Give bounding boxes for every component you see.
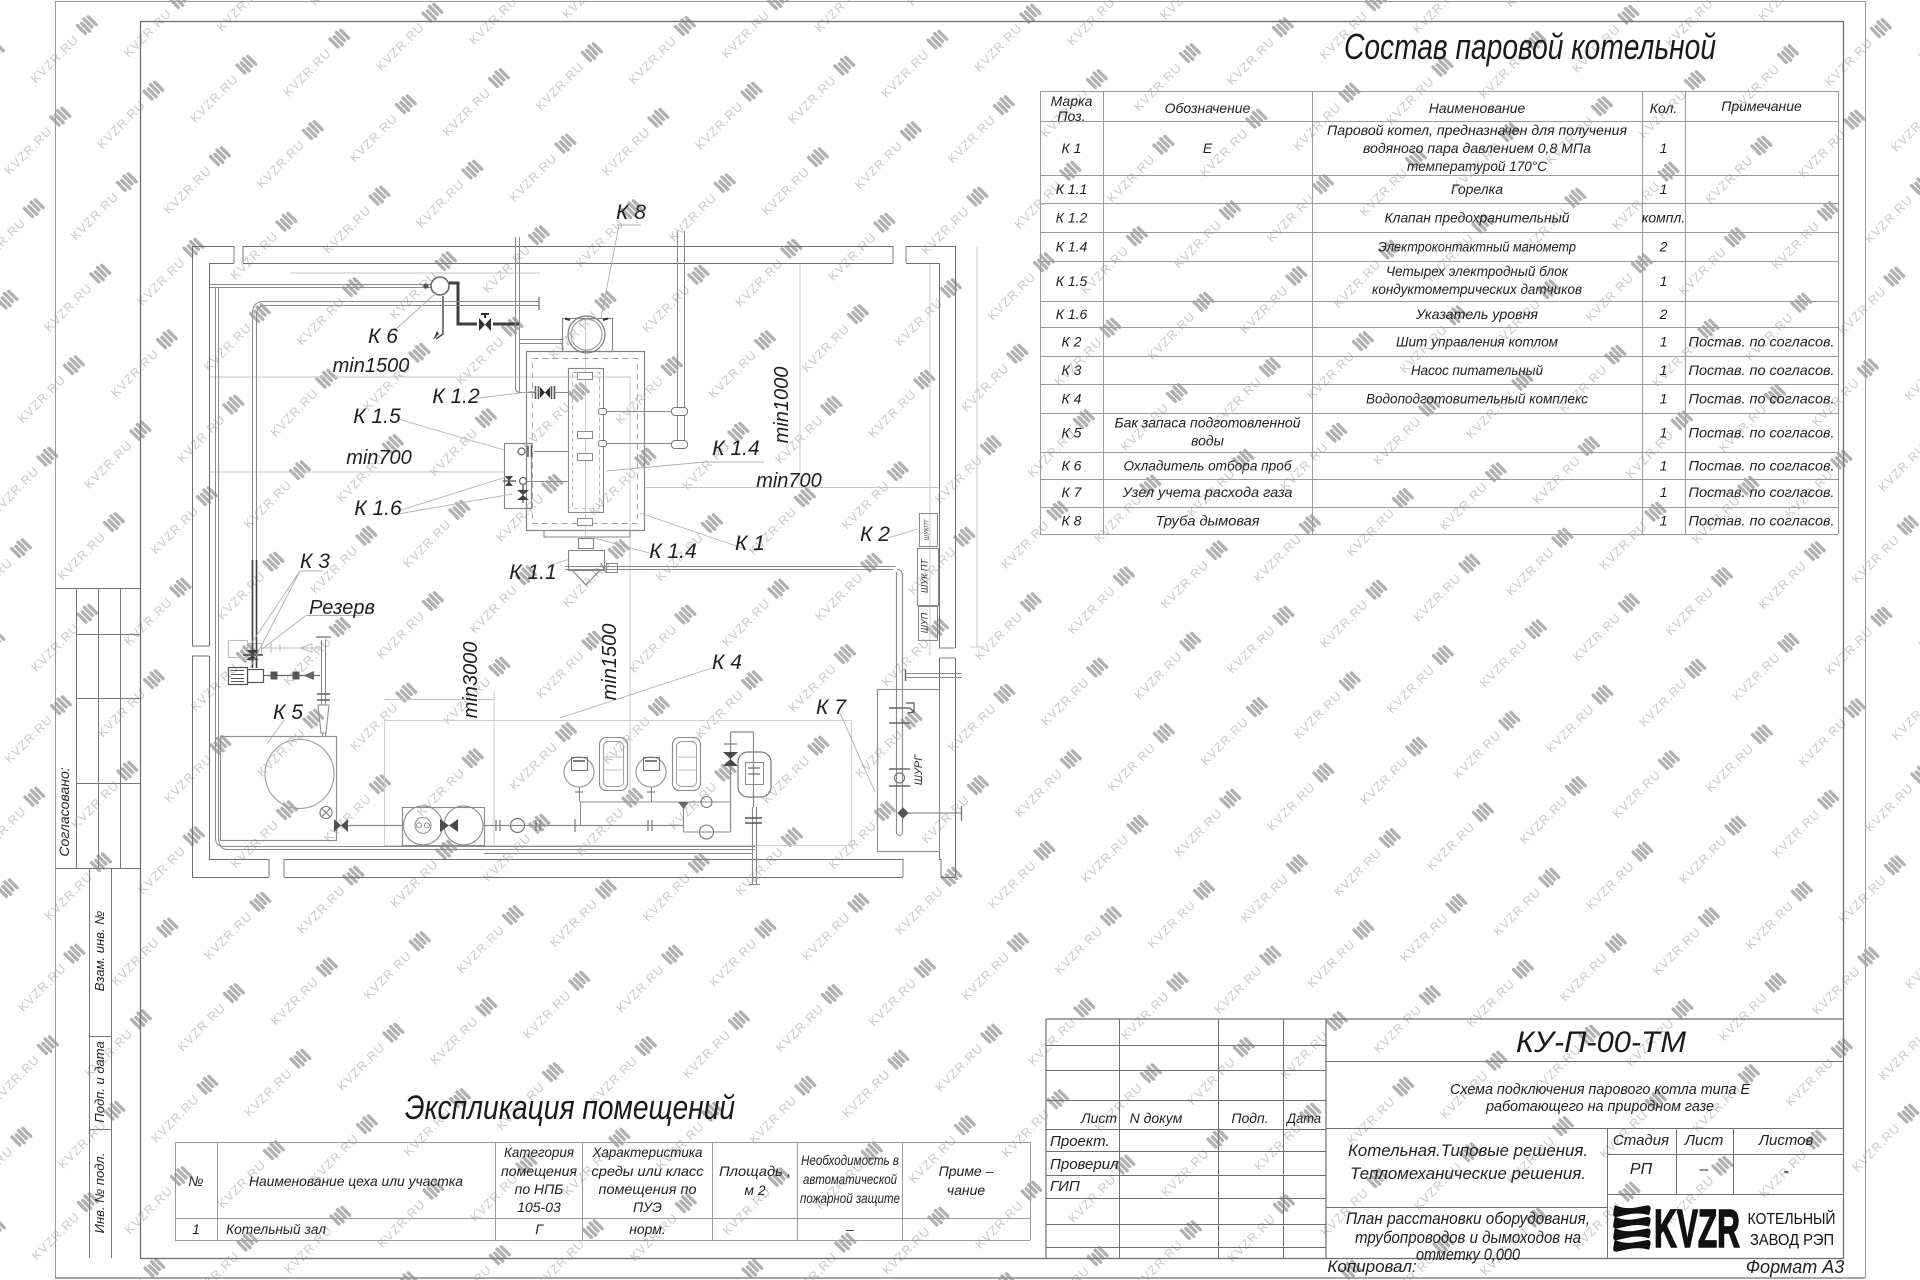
svg-text:Паровой котел, предназначен дл: Паровой котел, предназначен для получени…: [1327, 122, 1628, 138]
svg-text:К 1: К 1: [1062, 140, 1082, 156]
svg-text:Труба дымовая: Труба дымовая: [1156, 513, 1261, 529]
svg-text:1: 1: [1660, 334, 1668, 350]
svg-text:Резерв: Резерв: [309, 597, 375, 619]
svg-text:Приме –: Приме –: [939, 1163, 994, 1179]
svg-text:Постав. по согласов.: Постав. по согласов.: [1689, 513, 1835, 529]
svg-text:работающего на природном газе: работающего на природном газе: [1485, 1098, 1714, 1115]
svg-text:К 5: К 5: [273, 701, 303, 724]
svg-text:ПУЭ: ПУЭ: [633, 1199, 662, 1215]
svg-text:1: 1: [192, 1221, 200, 1237]
svg-text:помещения: помещения: [501, 1163, 578, 1179]
svg-text:min3000: min3000: [460, 642, 482, 719]
svg-text:План расстановки оборудования,: План расстановки оборудования,: [1346, 1209, 1590, 1228]
svg-text:Кол.: Кол.: [1650, 100, 1678, 116]
svg-text:Проект.: Проект.: [1050, 1133, 1110, 1150]
svg-text:1: 1: [1660, 458, 1668, 474]
svg-text:К 1.2: К 1.2: [432, 385, 480, 408]
svg-text:Согласовано:: Согласовано:: [56, 767, 72, 856]
svg-text:ЗАВОД РЭП: ЗАВОД РЭП: [1750, 1232, 1834, 1249]
svg-text:Клапан предохранительный: Клапан предохранительный: [1385, 210, 1570, 226]
svg-text:К 1.5: К 1.5: [353, 405, 401, 428]
svg-text:Подп. и дата: Подп. и дата: [92, 1041, 107, 1122]
svg-text:1: 1: [1660, 391, 1668, 407]
svg-text:-: -: [1783, 1163, 1788, 1180]
svg-text:Тепломеханические решения.: Тепломеханические решения.: [1350, 1164, 1586, 1183]
svg-text:К 2: К 2: [860, 523, 890, 546]
svg-text:min1500: min1500: [333, 355, 410, 377]
svg-text:Наименование цеха или участка: Наименование цеха или участка: [249, 1173, 463, 1189]
svg-text:Постав. по согласов.: Постав. по согласов.: [1689, 391, 1835, 407]
svg-text:ШУРГ: ШУРГ: [913, 754, 925, 785]
svg-text:Лист: Лист: [1684, 1132, 1724, 1149]
svg-text:Постав. по согласов.: Постав. по согласов.: [1689, 484, 1835, 500]
svg-text:К 6: К 6: [1062, 458, 1082, 474]
svg-text:min1500: min1500: [599, 624, 621, 701]
svg-text:Бак запаса подготовленной: Бак запаса подготовленной: [1115, 415, 1301, 431]
svg-text:Проверил: Проверил: [1050, 1156, 1119, 1173]
svg-text:Подп.: Подп.: [1231, 1110, 1268, 1126]
svg-text:Постав. по согласов.: Постав. по согласов.: [1689, 458, 1835, 474]
svg-text:К 1: К 1: [735, 532, 765, 555]
svg-text:Формат А3: Формат А3: [1746, 1257, 1845, 1277]
svg-text:Водоподготовительный комплекс: Водоподготовительный комплекс: [1366, 391, 1588, 407]
svg-text:105-03: 105-03: [517, 1199, 561, 1215]
svg-text:min700: min700: [346, 447, 412, 469]
svg-text:К 1.1: К 1.1: [1056, 181, 1088, 197]
svg-text:Листов: Листов: [1758, 1132, 1814, 1149]
svg-text:Указатель уровня: Указатель уровня: [1415, 306, 1539, 322]
svg-text:Постав. по согласов.: Постав. по согласов.: [1689, 425, 1835, 441]
svg-text:воды: воды: [1191, 433, 1225, 449]
svg-text:ШУК ПТ: ШУК ПТ: [920, 558, 930, 593]
svg-text:К 1.1: К 1.1: [509, 561, 556, 584]
svg-text:ШУП: ШУП: [920, 612, 930, 633]
svg-text:1: 1: [1660, 273, 1668, 289]
svg-text:К 3: К 3: [300, 550, 330, 573]
svg-text:РП: РП: [1630, 1161, 1653, 1178]
svg-text:К 6: К 6: [368, 325, 398, 348]
svg-text:1: 1: [1660, 140, 1668, 156]
svg-text:К 4: К 4: [712, 651, 742, 674]
svg-text:Стадия: Стадия: [1613, 1132, 1669, 1149]
svg-text:пожарной защите: пожарной защите: [800, 1190, 900, 1206]
svg-text:Инв. № подл.: Инв. № подл.: [92, 1153, 107, 1234]
svg-text:–: –: [1699, 1161, 1709, 1178]
svg-text:Лист: Лист: [1080, 1110, 1117, 1126]
svg-text:1: 1: [1660, 513, 1668, 529]
svg-text:КОТЕЛЬНЫЙ: КОТЕЛЬНЫЙ: [1748, 1209, 1836, 1228]
svg-text:норм.: норм.: [629, 1221, 666, 1237]
svg-text:К 1.5: К 1.5: [1056, 273, 1088, 289]
svg-text:Марка: Марка: [1051, 93, 1093, 109]
svg-text:Четырех электродный блок: Четырех электродный блок: [1386, 263, 1569, 279]
svg-text:К 8: К 8: [616, 201, 646, 224]
svg-text:К 7: К 7: [816, 696, 847, 719]
svg-text:2: 2: [1659, 239, 1668, 255]
svg-text:N докум: N докум: [1130, 1110, 1183, 1126]
svg-text:№: №: [188, 1173, 203, 1189]
svg-text:чание: чание: [947, 1182, 986, 1198]
svg-text:Е: Е: [1203, 140, 1213, 156]
svg-text:Узел учета расхода газа: Узел учета расхода газа: [1121, 484, 1292, 500]
svg-text:Охладитель отбора проб: Охладитель отбора проб: [1124, 458, 1293, 474]
svg-text:КУ-П-00-ТМ: КУ-П-00-ТМ: [1516, 1026, 1686, 1059]
svg-text:К 7: К 7: [1062, 484, 1083, 500]
svg-text:отметку 0,000: отметку 0,000: [1416, 1245, 1520, 1264]
svg-text:Дата: Дата: [1285, 1110, 1321, 1126]
svg-text:1: 1: [1660, 425, 1668, 441]
svg-text:Поз.: Поз.: [1057, 108, 1085, 124]
svg-text:К 1.6: К 1.6: [1056, 306, 1088, 322]
svg-text:–: –: [845, 1221, 854, 1237]
svg-text:Примечание: Примечание: [1721, 98, 1802, 114]
svg-text:2: 2: [1659, 306, 1668, 322]
svg-text:К 1.2: К 1.2: [1056, 210, 1088, 226]
svg-text:К 2: К 2: [1062, 334, 1082, 350]
svg-text:Категория: Категория: [504, 1144, 574, 1160]
svg-text:Площадь ,: Площадь ,: [719, 1163, 791, 1179]
svg-text:1: 1: [1660, 181, 1668, 197]
svg-text:автоматической: автоматической: [803, 1171, 897, 1187]
svg-text:Состав паровой котельной: Состав паровой котельной: [1344, 26, 1716, 67]
svg-text:компл.: компл.: [1642, 210, 1685, 226]
svg-text:Насос питательный: Насос питательный: [1411, 362, 1543, 378]
svg-text:К 1.4: К 1.4: [649, 540, 696, 563]
svg-text:Горелка: Горелка: [1451, 181, 1503, 197]
svg-text:среды или класс: среды или класс: [592, 1163, 704, 1179]
svg-text:Котельная.Типовые решения.: Котельная.Типовые решения.: [1348, 1141, 1588, 1160]
svg-text:кондуктометрических датчиков: кондуктометрических датчиков: [1372, 281, 1582, 297]
svg-text:К 1.4: К 1.4: [712, 437, 759, 460]
svg-text:К 1.4: К 1.4: [1056, 239, 1088, 255]
svg-text:помещения по: помещения по: [599, 1181, 697, 1197]
svg-text:Взам. инв. №: Взам. инв. №: [92, 911, 107, 991]
svg-text:Котельный зал: Котельный зал: [226, 1221, 326, 1237]
svg-text:водяного пара давлением 0,8 МП: водяного пара давлением 0,8 МПа: [1363, 140, 1591, 156]
svg-text:Характеристика: Характеристика: [592, 1144, 703, 1160]
svg-text:Необходимость в: Необходимость в: [801, 1152, 899, 1168]
svg-text:м 2: м 2: [744, 1182, 765, 1198]
svg-text:К 1.6: К 1.6: [354, 497, 402, 520]
svg-text:Схема подключения парового кот: Схема подключения парового котла типа Е: [1450, 1081, 1751, 1098]
svg-text:Наименование: Наименование: [1429, 100, 1526, 116]
svg-text:Электроконтактный манометр: Электроконтактный манометр: [1378, 239, 1576, 255]
svg-text:Копировал:: Копировал:: [1327, 1257, 1417, 1276]
svg-text:К 8: К 8: [1062, 513, 1082, 529]
svg-text:ШУКПТ: ШУКПТ: [925, 518, 931, 540]
svg-text:Экспликация помещений: Экспликация помещений: [405, 1089, 735, 1127]
svg-text:Постав. по согласов.: Постав. по согласов.: [1689, 362, 1835, 378]
svg-text:min700: min700: [756, 470, 822, 492]
svg-text:по НПБ: по НПБ: [515, 1181, 564, 1197]
svg-text:min1000: min1000: [771, 367, 793, 444]
svg-text:KVZR: KVZR: [1654, 1199, 1740, 1259]
svg-text:Обозначение: Обозначение: [1165, 100, 1251, 116]
svg-text:Шит управления котлом: Шит управления котлом: [1396, 334, 1558, 350]
svg-text:К 5: К 5: [1062, 425, 1082, 441]
svg-text:Постав. по согласов.: Постав. по согласов.: [1689, 334, 1835, 350]
svg-text:1: 1: [1660, 484, 1668, 500]
svg-text:К 4: К 4: [1062, 391, 1082, 407]
svg-text:К 3: К 3: [1062, 362, 1082, 378]
svg-text:1: 1: [1660, 362, 1668, 378]
svg-text:температурой 170°С: температурой 170°С: [1407, 158, 1548, 174]
svg-text:ГИП: ГИП: [1050, 1178, 1080, 1195]
